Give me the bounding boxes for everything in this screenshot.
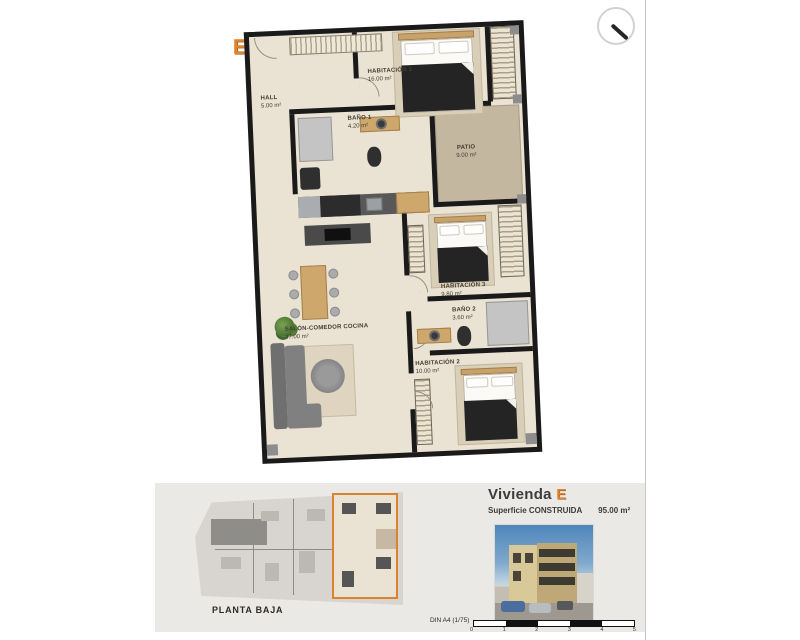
oven-unit [320, 194, 361, 217]
pillar [517, 194, 526, 203]
mini-plan-unit-e[interactable] [332, 493, 398, 599]
photo-balcony [539, 563, 575, 571]
scale-segment [602, 621, 634, 626]
room-label-hall: HALL 5.00 m² [260, 95, 281, 111]
page-edge-divider [645, 0, 646, 640]
cooktop [324, 228, 350, 241]
mini-wall [253, 503, 254, 593]
pillow [439, 225, 459, 236]
footer-panel: PLANTA BAJA Vivienda E Superficie CONSTR… [155, 483, 645, 632]
scale-segment [506, 621, 538, 626]
room-area: 9.00 m² [456, 152, 477, 160]
photo-balcony [539, 577, 575, 585]
room-label-habitacion1: HABITACIÓN 1 16.00 m² [367, 67, 412, 84]
page: E [0, 0, 800, 640]
unit-title: Vivienda E [488, 486, 567, 503]
mini-furniture [261, 511, 279, 521]
mini-wall [293, 499, 294, 595]
scale-ticks: 0 1 2 3 4 5 [470, 627, 636, 633]
photo-car [501, 601, 525, 612]
scale-tick: 0 [470, 627, 473, 633]
wardrobe-habitacion2 [414, 379, 433, 446]
pillow [466, 377, 488, 388]
unit-title-letter: E [556, 486, 566, 503]
mini-furniture [265, 563, 279, 581]
sofa-chaise [287, 403, 322, 428]
mini-furniture [221, 557, 241, 569]
toilet-bano2 [457, 326, 472, 347]
pillar [525, 433, 536, 444]
sheet-format-label: DIN A4 (1/75) [430, 617, 469, 624]
mini-furniture [299, 551, 315, 573]
room-area: 3.60 m² [452, 314, 476, 323]
mini-roof-slab [211, 519, 267, 545]
shower-bano1 [298, 117, 334, 162]
mini-unit-patio [376, 529, 396, 549]
pillow [404, 42, 434, 55]
room-label-habitacion2: HABITACIÓN 2 10.00 m² [415, 359, 460, 376]
pillow [491, 376, 513, 387]
surface-value: 95.00 m² [598, 506, 630, 515]
room-label-bano1: BAÑO 1 4.20 m² [347, 115, 372, 131]
surface-line: Superficie CONSTRUIDA 95.00 m² [488, 506, 630, 515]
pillow [438, 41, 468, 54]
scale-bar [473, 620, 635, 627]
photo-window [513, 571, 521, 581]
photo-car [557, 601, 573, 610]
balcony-shutter-top [490, 26, 517, 100]
scale-tick: 2 [535, 627, 538, 633]
bed-blanket-habitacion2 [464, 399, 518, 441]
scale-segment [570, 621, 602, 626]
mini-unit-bed [376, 557, 391, 569]
photo-window [513, 553, 521, 563]
pillar [513, 94, 522, 103]
scale-segment [538, 621, 570, 626]
pillar [510, 25, 519, 34]
magnifier-handle [611, 23, 629, 40]
unit-title-text: Vivienda [488, 486, 552, 503]
scale-segment [474, 621, 506, 626]
fridge [298, 196, 321, 218]
toilet-bano1 [367, 146, 382, 167]
pillar [267, 444, 278, 455]
scale-tick: 5 [633, 627, 636, 633]
magnifier-icon[interactable] [597, 7, 635, 45]
shower-bano2 [486, 300, 530, 346]
surface-label: Superficie CONSTRUIDA [488, 506, 582, 515]
planta-baja-mini-plan [195, 491, 403, 605]
photo-window [525, 553, 533, 563]
mini-wall [215, 549, 332, 550]
washer-bano1 [300, 167, 321, 190]
wardrobe-habitacion3 [407, 225, 425, 274]
mini-unit-sofa [342, 571, 354, 587]
kitchen-cabinet [396, 191, 430, 213]
kitchen-sink [366, 197, 383, 211]
scale-tick: 1 [503, 627, 506, 633]
photo-car [529, 603, 551, 613]
dining-table [300, 265, 328, 320]
mini-unit-bed [342, 503, 356, 514]
scale-tick: 4 [600, 627, 603, 633]
room-area: 4.20 m² [348, 122, 372, 131]
floor-plan: HALL 5.00 m² HABITACIÓN 1 16.00 m² BAÑO … [244, 20, 543, 464]
balcony-shutter-mid [498, 204, 525, 277]
mini-unit-bed [376, 503, 391, 514]
room-label-bano2: BAÑO 2 3.60 m² [452, 306, 477, 322]
room-label-habitacion3: HABITACIÓN 3 9.80 m² [441, 282, 486, 299]
room-label-patio: PATIO 9.00 m² [456, 144, 477, 160]
photo-neighbor-building [577, 573, 593, 605]
room-area: 5.00 m² [261, 102, 282, 110]
scale-tick: 3 [568, 627, 571, 633]
mini-furniture [307, 509, 325, 521]
photo-balcony [539, 549, 575, 557]
building-photo [494, 524, 594, 625]
bed-blanket-habitacion3 [437, 246, 488, 283]
planta-baja-label: PLANTA BAJA [212, 605, 283, 615]
pillow [463, 224, 483, 235]
patio-area [434, 104, 523, 204]
